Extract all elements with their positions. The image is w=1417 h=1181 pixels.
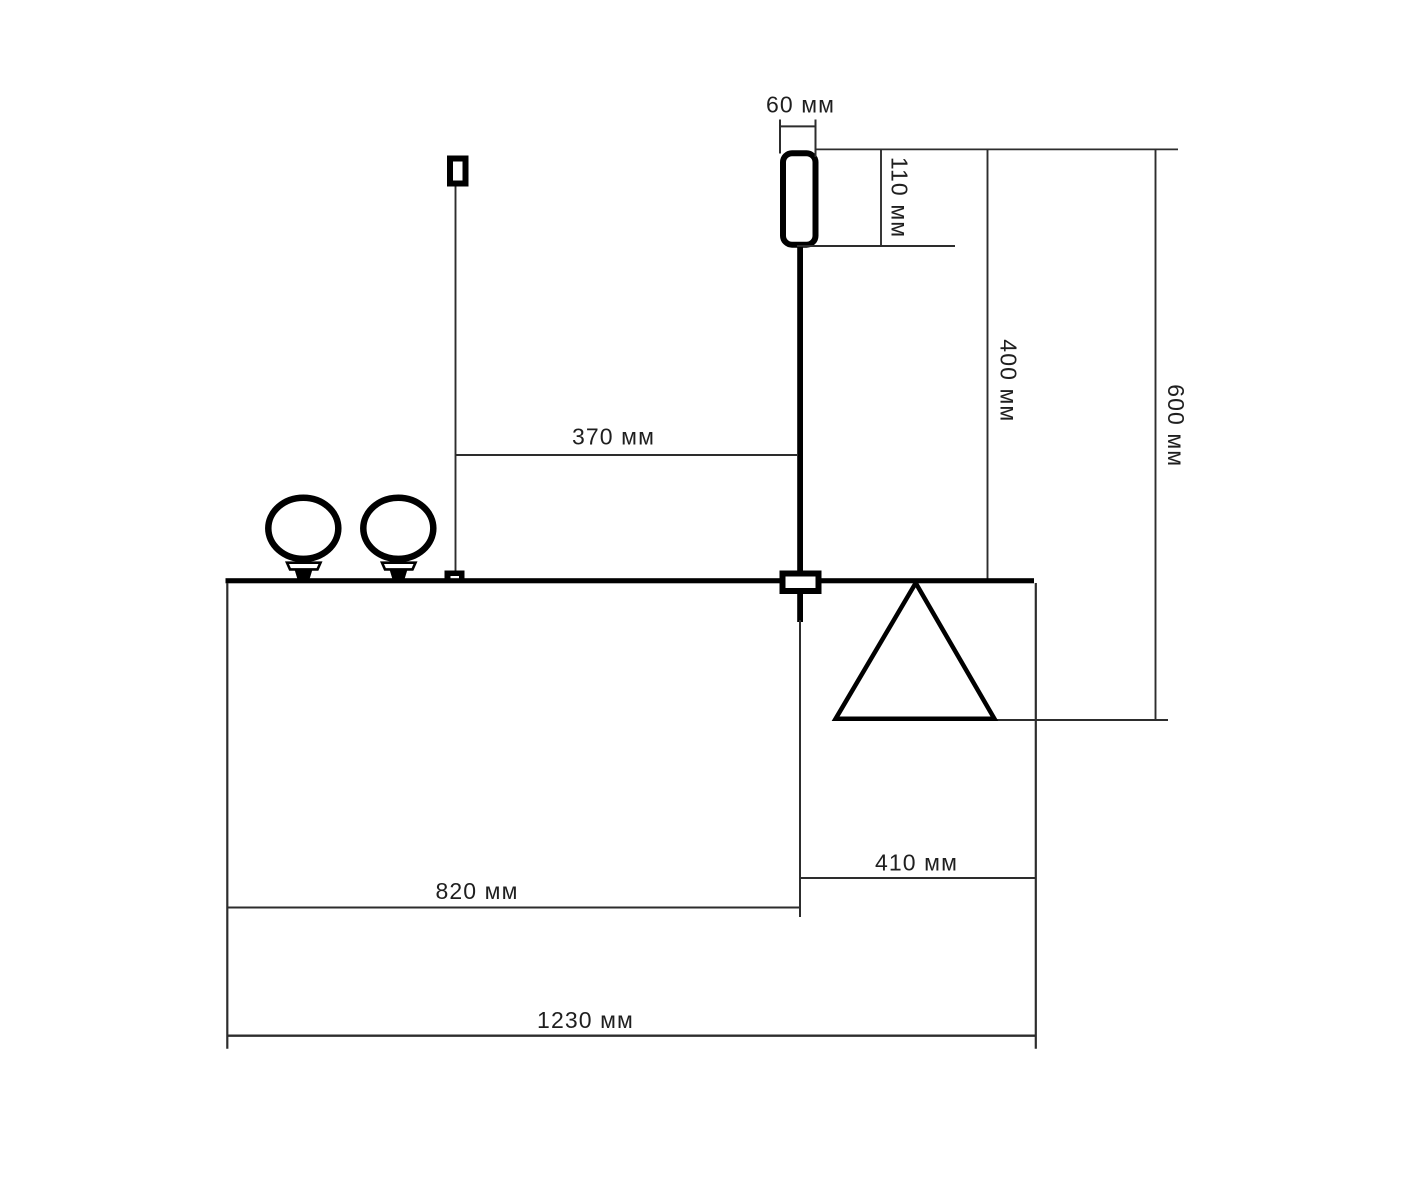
svg-text:410 мм: 410 мм (875, 850, 958, 876)
svg-text:370 мм: 370 мм (572, 424, 655, 450)
svg-text:600 мм: 600 мм (1163, 384, 1189, 467)
svg-text:110 мм: 110 мм (887, 157, 913, 238)
svg-text:820 мм: 820 мм (436, 878, 519, 904)
svg-text:1230 мм: 1230 мм (537, 1007, 634, 1033)
svg-text:60 мм: 60 мм (766, 92, 835, 118)
svg-text:400 мм: 400 мм (995, 339, 1021, 422)
